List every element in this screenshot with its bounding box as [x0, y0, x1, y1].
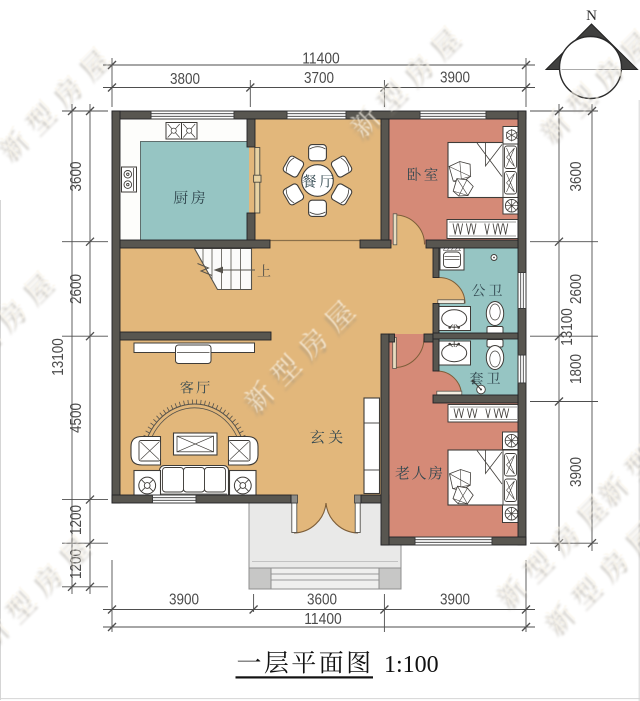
svg-text:3900: 3900 [440, 70, 470, 87]
svg-text:N: N [586, 8, 597, 24]
svg-text:2600: 2600 [68, 274, 85, 304]
svg-text:3700: 3700 [304, 70, 334, 87]
svg-text:1200: 1200 [68, 505, 85, 535]
svg-text:4500: 4500 [68, 403, 85, 433]
svg-text:3600: 3600 [307, 592, 337, 609]
svg-text:13100: 13100 [50, 338, 67, 376]
svg-text:3600: 3600 [568, 161, 585, 191]
svg-text:13100: 13100 [559, 308, 576, 346]
svg-text:11400: 11400 [304, 611, 342, 628]
svg-text:3900: 3900 [568, 457, 585, 487]
svg-text:1800: 1800 [568, 354, 585, 384]
svg-text:1:100: 1:100 [384, 652, 439, 678]
svg-text:3800: 3800 [170, 71, 200, 88]
svg-text:3900: 3900 [169, 592, 199, 609]
svg-text:2600: 2600 [568, 274, 585, 304]
svg-text:11400: 11400 [302, 51, 340, 68]
svg-text:3900: 3900 [440, 592, 470, 609]
svg-text:3600: 3600 [68, 161, 85, 191]
